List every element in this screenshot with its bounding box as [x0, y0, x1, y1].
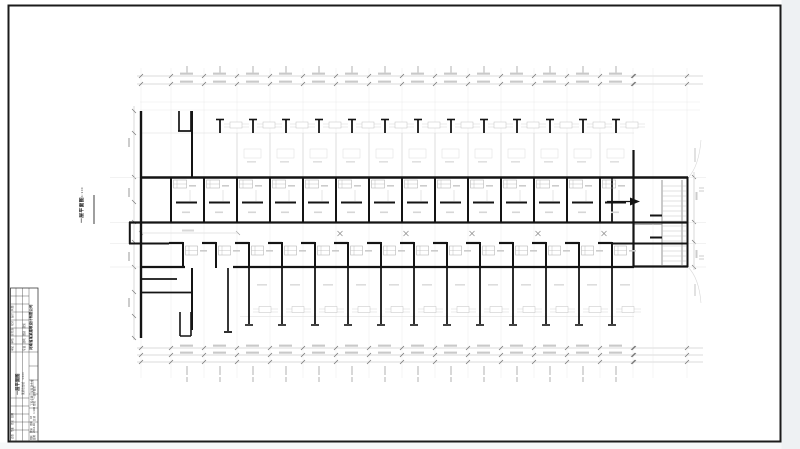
veranda-column: [579, 120, 612, 134]
corridor-dim-number: [182, 230, 194, 232]
veranda-edge-lines: [141, 133, 634, 317]
veranda-column: [282, 120, 315, 134]
sheet-name-line: 图名 一层平面图: [34, 386, 37, 406]
veranda-column: [249, 120, 282, 134]
axis-numbers: [318, 66, 320, 382]
room-unit-lower: [183, 242, 207, 268]
dimension-numbers: [411, 73, 424, 354]
room-unit-lower: [381, 242, 405, 268]
floor-plan-canvas: [0, 0, 800, 449]
veranda-column: [480, 120, 513, 134]
room-unit-lower: [249, 242, 273, 268]
title-block-major-labels: 专业 建筑 图别 建施: [24, 323, 27, 351]
faint-horizontal-lines: [140, 102, 700, 110]
balcony-divider: [534, 133, 558, 177]
door-swing-mark: [404, 231, 409, 236]
balcony-divider: [567, 133, 591, 177]
room-unit-upper: [534, 177, 560, 222]
room-unit-lower: [216, 242, 240, 268]
room-unit-upper: [204, 177, 230, 222]
level-marks: [699, 188, 704, 259]
dimension-numbers: [510, 73, 523, 354]
room-unit-upper: [237, 177, 263, 222]
dimension-numbers: [378, 73, 391, 354]
room-unit-lower: [315, 242, 339, 268]
room-unit-upper: [270, 177, 296, 222]
axis-numbers: [285, 66, 287, 382]
axis-numbers: [450, 66, 452, 382]
axis-numbers: [186, 66, 188, 382]
dimension-numbers: [609, 73, 622, 354]
room-unit-upper: [501, 177, 527, 222]
veranda-column: [216, 120, 249, 134]
wall-layer: [94, 111, 688, 338]
door-swing-mark: [470, 231, 475, 236]
axis-numbers: [351, 66, 353, 382]
balcony-divider: [270, 133, 294, 177]
balcony-divider: [600, 133, 624, 177]
drawing-title-label: 一层平面图1:100: [81, 187, 86, 223]
room-unit-lower: [348, 242, 372, 268]
axis-numbers: [615, 66, 617, 382]
room-unit-upper: [402, 177, 428, 222]
light-detail-layer: [110, 66, 706, 382]
room-unit-lower: [513, 242, 537, 268]
room-unit-upper: [435, 177, 461, 222]
veranda-column: [315, 120, 348, 134]
room-unit-lower: [579, 242, 603, 268]
axis-numbers: [582, 66, 584, 382]
bottom-left-partitions: [141, 279, 192, 293]
veranda-column: [348, 120, 381, 134]
axis-numbers: [483, 66, 485, 382]
top-left-duct-shaft: [178, 111, 192, 131]
balcony-divider: [336, 133, 360, 177]
side-note-smudge: [694, 284, 696, 296]
room-unit-upper: [171, 177, 197, 222]
room-unit-upper: [369, 177, 395, 222]
dimension-numbers: [246, 73, 259, 354]
axis-numbers: [219, 66, 221, 382]
title-block-role-labels: 审定 审核 总负责 校对 设计 制图: [12, 306, 15, 351]
sheet-date-line: 日期 2010.06 比例 1:100: [34, 407, 36, 440]
veranda-column: [546, 120, 579, 134]
side-note-smudge: [694, 148, 696, 162]
bottom-margin-strip: [0, 443, 782, 449]
title-block-drawing-name: 一层平面图: [17, 374, 21, 395]
dimension-numbers: [543, 73, 556, 354]
balcony-divider: [402, 133, 426, 177]
room-unit-lower: [546, 242, 570, 268]
room-unit-upper: [567, 177, 593, 222]
company-name: 河南省某某建筑设计有限公司: [30, 305, 34, 351]
dimension-numbers: [279, 73, 292, 354]
room-unit-upper: [600, 177, 626, 222]
balcony-divider: [435, 133, 459, 177]
room-unit-lower: [282, 242, 306, 268]
veranda-column: [513, 120, 546, 134]
room-unit-lower: [414, 242, 438, 268]
dimension-numbers: [345, 73, 358, 354]
title-block-drawing-sub: 某某宿舍楼 1:100: [23, 372, 26, 395]
dimension-numbers: [213, 73, 226, 354]
room-unit-upper: [336, 177, 362, 222]
door-swing-mark: [602, 231, 607, 236]
axis-numbers: [417, 66, 419, 382]
dimension-numbers: [444, 73, 457, 354]
dimension-numbers: [576, 73, 589, 354]
room-unit-lower: [447, 242, 471, 268]
axis-numbers: [516, 66, 518, 382]
balcony-divider: [237, 133, 261, 177]
room-unit-lower: [480, 242, 504, 268]
veranda-column: [612, 120, 645, 134]
site-curve-lines: [688, 140, 701, 303]
signature-line: 会签 专业 姓名 日期: [12, 413, 14, 439]
balcony-divider: [501, 133, 525, 177]
axis-numbers: [252, 66, 254, 382]
veranda-column: [447, 120, 480, 134]
porch-column-end: [224, 268, 232, 332]
right-margin-strip: [782, 0, 800, 449]
balcony-divider: [468, 133, 492, 177]
veranda-column: [414, 120, 447, 134]
room-unit-upper: [303, 177, 329, 222]
balcony-divider: [369, 133, 393, 177]
room-unit-upper: [468, 177, 494, 222]
dimension-numbers: [312, 73, 325, 354]
door-swing-mark: [338, 231, 343, 236]
drawing-title-text: 一层平面图: [80, 197, 85, 223]
veranda-column: [381, 120, 414, 134]
balcony-divider: [303, 133, 327, 177]
stair-door-walls: [650, 216, 662, 238]
drawing-scale-text: 1:100: [80, 187, 84, 197]
axis-numbers: [384, 66, 386, 382]
door-swing-mark: [536, 231, 541, 236]
axis-numbers: [549, 66, 551, 382]
dimension-numbers: [477, 73, 490, 354]
bottom-left-duct-shaft: [180, 312, 191, 336]
direction-arrow-head: [630, 198, 640, 206]
drawing-sheet-page: { "drawing_label": { "title": "一层平面图", "…: [0, 0, 800, 449]
